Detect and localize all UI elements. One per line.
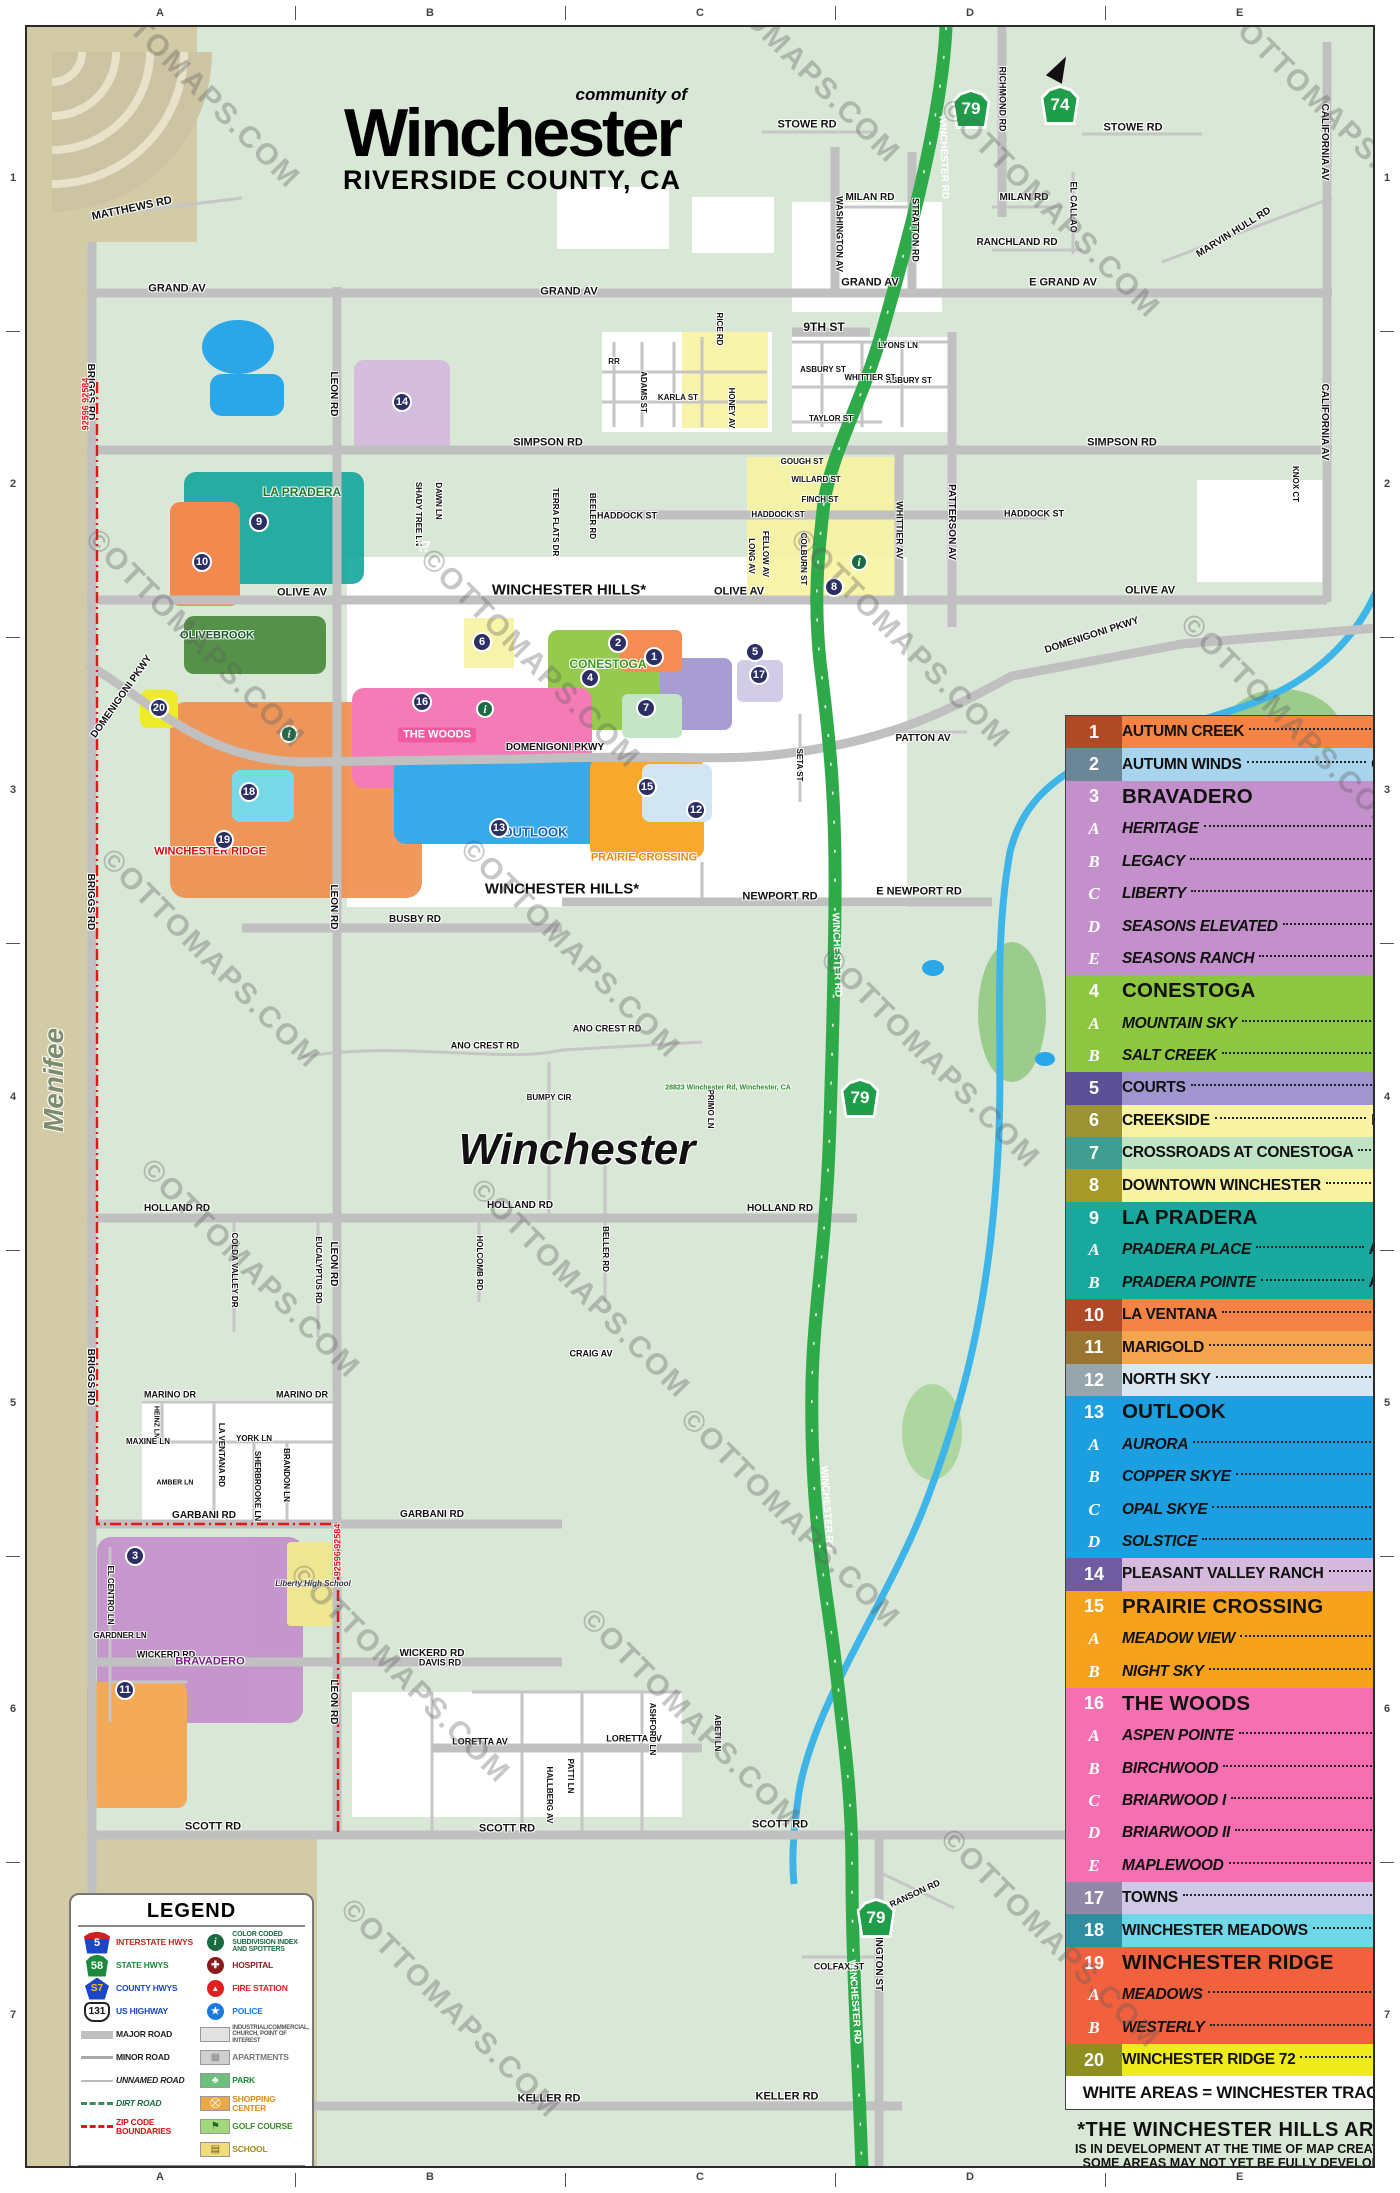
grid-row-label-right-6: 6 <box>1384 1703 1390 1715</box>
road-label-patterson-av: PATTERSON AV <box>946 484 956 560</box>
index-row-3C: CLIBERTYA-6 <box>1066 878 1375 910</box>
grid-col-label-bottom-B: B <box>426 2171 434 2183</box>
road-label-eucalyptus-rd: EUCALYPTUS RD <box>314 1236 322 1303</box>
index-row-15: 15PRAIRIE CROSSING <box>1066 1591 1375 1623</box>
footnote-line1: IS IN DEVELOPMENT AT THE TIME OF MAP CRE… <box>1057 2142 1375 2156</box>
index-letter: A <box>1066 1720 1122 1752</box>
legend-label: PARK <box>232 2076 255 2085</box>
leader-dots <box>1191 1084 1375 1086</box>
index-row-12: 12NORTH SKYC-3 <box>1066 1364 1375 1396</box>
watermark: ©OTTOMAPS.COM <box>573 1602 806 1835</box>
road-label-asbury-st: ASBURY ST <box>800 366 846 374</box>
index-number: 3 <box>1066 781 1122 813</box>
index-row-16C: CBRIARWOOD IB-3 <box>1066 1785 1375 1817</box>
legend-footer: MAPS BY OTTOMAPS.COM <box>78 2165 305 2168</box>
index-number: 4 <box>1066 975 1122 1007</box>
watermark: ©OTTOMAPS.COM <box>463 1172 696 1405</box>
subdivision-name: PRADERA PLACE <box>1122 1241 1251 1259</box>
index-row-13B: BCOPPER SKYEB-3 <box>1066 1461 1375 1493</box>
grid-row-label-right-2: 2 <box>1384 478 1390 490</box>
route-79-shield-mid: 79 <box>839 1078 881 1118</box>
index-footnote: *THE WINCHESTER HILLS AREA IS IN DEVELOP… <box>1057 2119 1375 2168</box>
grid-col-label-top-B: B <box>426 7 434 19</box>
legend-item-apartments-swatch: ▦APARTMENTS <box>198 2046 305 2069</box>
road-label-conestoga: CONESTOGA <box>569 658 646 670</box>
minor-road-line-icon <box>81 2056 113 2059</box>
road-label-stratton-rd: STRATTON RD <box>911 198 920 262</box>
index-row-16E: EMAPLEWOODB-3 <box>1066 1850 1375 1882</box>
index-row-4: 4CONESTOGA <box>1066 975 1375 1007</box>
grid-col-label-top-A: A <box>156 7 164 19</box>
ruler-tick <box>1380 331 1394 332</box>
north-arrow-icon <box>1046 52 1074 83</box>
road-label-ranchland-rd: RANCHLAND RD <box>976 238 1057 248</box>
leader-dots <box>1231 1797 1375 1799</box>
subdivision-name: HERITAGE <box>1122 820 1199 838</box>
grid-row-label-left-2: 2 <box>10 478 16 490</box>
road-label-simpson-rd: SIMPSON RD <box>1087 438 1157 449</box>
grid-row-label-left-6: 6 <box>10 1703 16 1715</box>
grid-row-label-right-5: 5 <box>1384 1397 1390 1409</box>
road-label-patton-av: PATTON AV <box>896 734 951 744</box>
ruler-tick <box>835 2173 836 2187</box>
road-label-honey-av: HONEY AV <box>727 388 735 429</box>
legend-item-state-hwy-shield: 58STATE HWYS <box>78 1954 198 1977</box>
road-label-seta-st: SETA ST <box>795 749 803 782</box>
ruler-tick <box>6 331 20 332</box>
road-label-craig-av: CRAIG AV <box>569 1350 612 1359</box>
shopping-center-swatch-icon: ⛒ <box>200 2096 230 2111</box>
index-letter: B <box>1066 1267 1122 1299</box>
legend-label: US HIGHWAY <box>116 2007 168 2016</box>
leader-dots <box>1242 1020 1375 1022</box>
index-number: 13 <box>1066 1396 1122 1428</box>
index-number: 6 <box>1066 1105 1122 1137</box>
index-letter: E <box>1066 1850 1122 1882</box>
index-letter: A <box>1066 813 1122 845</box>
grid-col-label-top-D: D <box>966 7 974 19</box>
leader-dots <box>1235 1829 1375 1831</box>
apartments-swatch-icon: ▦ <box>200 2050 230 2065</box>
road-label-domenigoni-pkwy: DOMENIGONI PKWY <box>90 654 155 740</box>
watermark: ©OTTOMAPS.COM <box>453 832 686 1065</box>
leader-dots <box>1240 1635 1375 1637</box>
subdivision-name: MEADOW VIEW <box>1122 1630 1235 1648</box>
index-row-15B: BNIGHT SKYC-3 <box>1066 1655 1375 1687</box>
major-road-line-icon <box>81 2031 113 2039</box>
legend-label: UNNAMED ROAD <box>116 2076 184 2085</box>
road-label-leon-rd: LEON RD <box>328 1242 338 1287</box>
road-label-california-av: CALIFORNIA AV <box>1319 384 1329 461</box>
leader-dots <box>1358 1149 1375 1151</box>
index-letter: A <box>1066 1623 1122 1655</box>
index-number: 11 <box>1066 1331 1122 1363</box>
legend-item-county-hwy-shield: S7COUNTY HWYS <box>78 1977 198 2000</box>
police-circle-icon: ★ <box>207 2003 224 2020</box>
legend-item-info-circle: iCOLOR CODED SUBDIVISION INDEX AND SPOTT… <box>198 1931 305 1954</box>
index-row-17: 17TOWNSC-3 <box>1066 1882 1375 1914</box>
road-label-ano-crest-rd: ANO CREST RD <box>451 1042 520 1051</box>
legend-item-unnamed-road: UNNAMED ROAD <box>78 2069 198 2092</box>
index-row-16D: DBRIARWOOD IIB-3 <box>1066 1817 1375 1849</box>
index-row-10: 10LA VENTANAA-2 <box>1066 1299 1375 1331</box>
leader-dots <box>1210 2024 1375 2026</box>
legend-item-minor-road: MINOR ROAD <box>78 2046 198 2069</box>
index-letter: B <box>1066 1753 1122 1785</box>
map-canvas: 79 79 79 74 community of Winchester RIVE… <box>25 25 1375 2168</box>
ruler-tick <box>1105 6 1106 20</box>
index-row-3A: AHERITAGEA-6 <box>1066 813 1375 845</box>
road-label-winchester: Winchester <box>459 1128 696 1172</box>
shopping-cart-icon <box>790 688 806 707</box>
subdivision-name: TOWNS <box>1122 1889 1178 1907</box>
road-label-garbani-rd: GARBANI RD <box>172 1511 236 1521</box>
index-row-19: 19WINCHESTER RIDGE <box>1066 1947 1375 1979</box>
road-label-haddock-st: HADDOCK ST <box>597 512 657 521</box>
subdivision-spotter-17: 17 <box>749 665 769 685</box>
road-label-briggs-rd: BRIGGS RD <box>85 1349 95 1406</box>
subdivision-spotter-13: 13 <box>489 818 509 838</box>
road-label-milan-rd: MILAN RD <box>846 193 895 203</box>
road-label-knox-ct: KNOX CT <box>1291 466 1299 502</box>
road-label-el-centro-ln: EL CENTRO LN <box>106 1566 114 1625</box>
index-letter: A <box>1066 1429 1122 1461</box>
index-row-16A: AASPEN POINTEB-3 <box>1066 1720 1375 1752</box>
road-label-grand-av: GRAND AV <box>841 278 898 289</box>
index-letter: B <box>1066 1461 1122 1493</box>
leader-dots <box>1329 1570 1375 1572</box>
road-label-28823-winchester-rd-winchester-ca: 28823 Winchester Rd, Winchester, CA <box>665 1085 791 1092</box>
road-label-busby-rd: BUSBY RD <box>389 915 441 925</box>
road-label-beeler-rd: BEELER RD <box>588 493 596 539</box>
grid-reference: B-2/3 <box>1371 1112 1375 1130</box>
index-letter: C <box>1066 1493 1122 1525</box>
grid-row-label-left-3: 3 <box>10 784 16 796</box>
leader-dots <box>1183 1894 1375 1896</box>
legend-label: COLOR CODED SUBDIVISION INDEX AND SPOTTE… <box>232 1931 305 1953</box>
road-label-olive-av: OLIVE AV <box>714 587 764 598</box>
index-row-16B: BBIRCHWOODB-3 <box>1066 1753 1375 1785</box>
leader-dots <box>1283 923 1375 925</box>
index-row-13C: COPAL SKYEB-3 <box>1066 1493 1375 1525</box>
ruler-tick <box>565 2173 566 2187</box>
legend-item-industrial-swatch: INDUSTRIAL/COMMERCIAL, CHURCH, POINT OF … <box>198 2023 305 2046</box>
road-label-gough-st: GOUGH ST <box>781 458 824 466</box>
shopping-cart-icon <box>777 646 793 665</box>
us-hwy-shield-icon: 131 <box>84 2002 110 2022</box>
ruler-tick <box>1380 943 1394 944</box>
legend-item-fire-station-circle: ▲FIRE STATION <box>198 1977 305 2000</box>
unnamed-road-line-icon <box>81 2080 113 2082</box>
leader-dots <box>1222 1311 1375 1313</box>
leader-dots <box>1222 1052 1375 1054</box>
grid-row-label-left-7: 7 <box>10 2009 16 2021</box>
subdivision-name: ASPEN POINTE <box>1122 1727 1234 1745</box>
legend-label: ZIP CODE BOUNDARIES <box>116 2118 198 2136</box>
grid-col-label-bottom-A: A <box>156 2171 164 2183</box>
road-label-newport-rd: NEWPORT RD <box>742 892 817 903</box>
grid-col-label-bottom-E: E <box>1236 2171 1243 2183</box>
index-letter: D <box>1066 910 1122 942</box>
road-label-terra-flats-dr: TERRA FLATS DR <box>551 488 559 556</box>
leader-dots <box>1326 1182 1375 1184</box>
index-letter: C <box>1066 878 1122 910</box>
leader-dots <box>1209 1344 1375 1346</box>
footnote-title: *THE WINCHESTER HILLS AREA <box>1057 2119 1375 2142</box>
road-label-grand-av: GRAND AV <box>148 284 205 295</box>
road-label-outlook: OUTLOOK <box>503 826 568 839</box>
subdivision-name: COURTS <box>1122 1079 1186 1097</box>
subdivision-name: BRIARWOOD II <box>1122 1824 1230 1842</box>
subdivision-name: AUTUMN WINDS <box>1122 756 1242 774</box>
road-label-heinz-ln: HEINZ LN <box>153 1406 160 1438</box>
legend-item-major-road: MAJOR ROAD <box>78 2023 198 2046</box>
ruler-tick <box>6 943 20 944</box>
road-label-haddock-st: HADDOCK ST <box>1004 510 1064 519</box>
legend-label: DIRT ROAD <box>116 2099 161 2108</box>
road-label-brandon-ln: BRANDON LN <box>282 1448 290 1502</box>
road-label-holland-rd: HOLLAND RD <box>747 1204 813 1214</box>
road-label-marvin-hull-rd: MARVIN HULL RD <box>1195 206 1273 260</box>
index-letter: A <box>1066 1008 1122 1040</box>
index-letter: C <box>1066 1785 1122 1817</box>
road-label-garbani-rd: GARBANI RD <box>400 1510 464 1520</box>
index-number: 10 <box>1066 1299 1122 1331</box>
grid-row-label-right-4: 4 <box>1384 1091 1390 1103</box>
road-label-hallberg-av: HALLBERG AV <box>545 1767 553 1824</box>
grid-col-label-bottom-D: D <box>966 2171 974 2183</box>
index-row-15A: AMEADOW VIEWC-3 <box>1066 1623 1375 1655</box>
road-label-rr: RR <box>608 358 620 366</box>
index-letter: B <box>1066 846 1122 878</box>
page-title: Winchester <box>282 99 742 167</box>
index-letter: B <box>1066 1040 1122 1072</box>
index-number: 5 <box>1066 1072 1122 1104</box>
leader-dots <box>1216 1376 1375 1378</box>
subdivision-name: COPPER SKYE <box>1122 1468 1231 1486</box>
index-row-7: 7CROSSROADS AT CONESTOGAC-3 <box>1066 1137 1375 1169</box>
ruler-tick <box>6 1556 20 1557</box>
leader-dots <box>1209 1668 1375 1670</box>
legend-box: LEGEND 5INTERSTATE HWYS58STATE HWYSS7COU… <box>69 1893 314 2168</box>
road-label-leon-rd: LEON RD <box>328 885 338 930</box>
road-label-stowe-rd: STOWE RD <box>1103 123 1162 134</box>
subdivision-spotter-1: 1 <box>644 647 664 667</box>
index-row-8: 8DOWNTOWN WINCHESTERD-2 <box>1066 1169 1375 1201</box>
legend-label: HOSPITAL <box>232 1961 273 1970</box>
road-label-bumpy-cir: BUMPY CIR <box>527 1094 572 1102</box>
road-label-davis-rd: DAVIS RD <box>419 1659 461 1668</box>
index-row-20: 20WINCHESTER RIDGE 72A-3 <box>1066 2044 1375 2076</box>
grid-row-label-right-3: 3 <box>1384 784 1390 796</box>
road-label-ashford-ln: ASHFORD LN <box>648 1703 656 1755</box>
subdivision-name: NORTH SKY <box>1122 1371 1211 1389</box>
road-label-grand-av: GRAND AV <box>540 287 597 298</box>
subdivision-name: NIGHT SKY <box>1122 1663 1204 1681</box>
interstate-shield-icon: 5 <box>84 1932 110 1954</box>
legend-item-golf-course-swatch: ⚑GOLF COURSE <box>198 2115 305 2138</box>
subdivision-name: CREEKSIDE <box>1122 1112 1210 1130</box>
subdivision-spotter-5: 5 <box>745 642 765 662</box>
ruler-tick <box>1380 1556 1394 1557</box>
subdivision-name: DOWNTOWN WINCHESTER <box>1122 1177 1321 1195</box>
road-label-holcomb-rd: HOLCOMB RD <box>475 1235 483 1290</box>
index-number: 9 <box>1066 1202 1122 1234</box>
legend-item-police-circle: ★POLICE <box>198 2000 305 2023</box>
legend-item-school-swatch: ▤SCHOOL <box>198 2138 305 2161</box>
road-label-willard-st: WILLARD ST <box>791 476 840 484</box>
road-label-olive-av: OLIVE AV <box>1125 586 1175 597</box>
road-label-beller-rd: BELLER RD <box>601 1226 609 1272</box>
road-label-whittier-av: WHITTIER AV <box>895 501 904 559</box>
zip-road-line-icon <box>81 2125 113 2128</box>
legend-label: GOLF COURSE <box>232 2122 292 2131</box>
road-label-stowe-rd: STOWE RD <box>777 120 836 131</box>
subdivision-name: WINCHESTER RIDGE 72 <box>1122 2051 1295 2069</box>
subdivision-name: THE WOODS <box>1122 1692 1250 1716</box>
legend-item-zip-road: ZIP CODE BOUNDARIES <box>78 2115 198 2138</box>
legend-item-us-hwy-shield: 131US HIGHWAY <box>78 2000 198 2023</box>
ruler-tick <box>835 6 836 20</box>
grid-row-label-right-7: 7 <box>1384 2009 1390 2021</box>
subdivision-name: SEASONS RANCH <box>1122 950 1254 968</box>
subdivision-name: SEASONS ELEVATED <box>1122 918 1278 936</box>
subdivision-name: OUTLOOK <box>1122 1400 1226 1424</box>
leader-dots <box>1229 1862 1376 1864</box>
road-label-la-pradera: LA PRADERA <box>263 486 341 498</box>
info-marker-icon: i <box>476 700 494 718</box>
road-label-gardner-ln: GARDNER LN <box>93 1632 146 1640</box>
road-label-menifee: Menifee <box>40 1028 68 1132</box>
ruler-tick <box>6 1250 20 1251</box>
subdivision-name: LA VENTANA <box>1122 1306 1217 1324</box>
grid-reference: A/B-2 <box>1369 1274 1375 1292</box>
road-label-patti-ln: PATTI LN <box>566 1759 574 1794</box>
subdivision-spotter-7: 7 <box>636 698 656 718</box>
subdivision-name: MOUNTAIN SKY <box>1122 1015 1237 1033</box>
ruler-tick <box>1105 2173 1106 2187</box>
index-row-13D: DSOLSTICEB-3 <box>1066 1526 1375 1558</box>
fire-station-circle-icon: ▲ <box>207 1980 224 1997</box>
subdivision-name: LA PRADERA <box>1122 1206 1258 1230</box>
leader-dots <box>1190 858 1375 860</box>
watermark: ©OTTOMAPS.COM <box>673 1402 906 1635</box>
road-label-prairie-crossing: PRAIRIE CROSSING <box>591 853 697 864</box>
legend-label: STATE HWYS <box>116 1961 168 1970</box>
industrial-swatch-icon <box>200 2027 230 2042</box>
subdivision-name: LIBERTY <box>1122 885 1186 903</box>
road-label-9th-st: 9TH ST <box>803 321 844 333</box>
route-74-shield: 74 <box>1039 85 1081 125</box>
index-number: 20 <box>1066 2044 1122 2076</box>
road-label-haddock-st: HADDOCK ST <box>751 511 804 519</box>
subdivision-name: WINCHESTER RIDGE <box>1122 1951 1334 1975</box>
subdivision-spotter-4: 4 <box>580 668 600 688</box>
subdivision-name: BIRCHWOOD <box>1122 1760 1218 1778</box>
grid-row-label-left-1: 1 <box>10 172 16 184</box>
subdivision-name: SALT CREEK <box>1122 1047 1217 1065</box>
leader-dots <box>1261 1279 1364 1281</box>
ruler-tick <box>295 2173 296 2187</box>
road-label-92596-92584: 92596 92584 <box>334 1524 343 1577</box>
subdivision-name: SOLSTICE <box>1122 1533 1197 1551</box>
index-letter: E <box>1066 943 1122 975</box>
grid-reference: C-2/3 <box>1371 756 1375 774</box>
school-swatch-icon: ▤ <box>200 2142 230 2157</box>
index-white-note: WHITE AREAS = WINCHESTER TRACTS <box>1066 2076 1375 2108</box>
index-row-5: 5COURTSC-3 <box>1066 1072 1375 1104</box>
subdivision-spotter-10: 10 <box>192 552 212 572</box>
legend-label: INTERSTATE HWYS <box>116 1938 193 1947</box>
county-hwy-shield-icon: S7 <box>85 1978 109 2000</box>
golf-course-swatch-icon: ⚑ <box>200 2119 230 2134</box>
subdivision-spotter-2: 2 <box>608 633 628 653</box>
road-label-ranson-rd: RANSON RD <box>888 1878 941 1909</box>
road-label-briggs-rd: BRIGGS RD <box>85 874 95 931</box>
subdivision-name: PRAIRIE CROSSING <box>1122 1595 1323 1619</box>
white-areas-note: WHITE AREAS = WINCHESTER TRACTS <box>1083 2083 1375 2103</box>
subdivision-name: OPAL SKYE <box>1122 1501 1207 1519</box>
road-label-la-ventana-rd: LA VENTANA RD <box>217 1423 225 1487</box>
legend-item-interstate-shield: 5INTERSTATE HWYS <box>78 1931 198 1954</box>
road-label-domenigoni-pkwy: DOMENIGONI PKWY <box>506 743 604 753</box>
index-row-3E: ESEASONS RANCHA-6 <box>1066 943 1375 975</box>
watermark: ©OTTOMAPS.COM <box>333 1892 566 2125</box>
road-label-simpson-rd: SIMPSON RD <box>513 438 583 449</box>
road-label-finch-st: FINCH ST <box>802 496 839 504</box>
leader-dots <box>1259 955 1375 957</box>
winchester-map-poster: 79 79 79 74 community of Winchester RIVE… <box>0 0 1400 2193</box>
leader-dots <box>1204 825 1375 827</box>
index-row-9A: APRADERA PLACEA/B-2 <box>1066 1234 1375 1266</box>
index-letter: D <box>1066 1526 1122 1558</box>
index-number: 2 <box>1066 748 1122 780</box>
subdivision-spotter-3: 3 <box>125 1546 145 1566</box>
road-label-taylor-st: TAYLOR ST <box>809 415 853 423</box>
subdivision-name: CROSSROADS AT CONESTOGA <box>1122 1144 1353 1162</box>
index-row-16: 16THE WOODS <box>1066 1688 1375 1720</box>
ruler-tick <box>1380 637 1394 638</box>
index-row-14: 14PLEASANT VALLEY RANCHB-2 <box>1066 1558 1375 1590</box>
road-label-scott-rd: SCOTT RD <box>479 1824 535 1835</box>
grid-row-label-left-5: 5 <box>10 1397 16 1409</box>
road-label-dawn-ln: DAWN LN <box>434 482 442 519</box>
legend-label: MINOR ROAD <box>116 2053 170 2062</box>
subdivision-name: WINCHESTER MEADOWS <box>1122 1922 1308 1940</box>
ruler-tick <box>1380 1862 1394 1863</box>
leader-dots <box>1215 1117 1366 1119</box>
road-label-scott-rd: SCOTT RD <box>185 1822 241 1833</box>
subdivision-name: PLEASANT VALLEY RANCH <box>1122 1565 1324 1583</box>
subdivision-spotter-12: 12 <box>686 800 706 820</box>
subdivision-spotter-19: 19 <box>214 830 234 850</box>
road-label-olive-av: OLIVE AV <box>277 588 327 599</box>
index-number: 7 <box>1066 1137 1122 1169</box>
subdivision-spotter-11: 11 <box>115 1680 135 1700</box>
legend-label: COUNTY HWYS <box>116 1984 177 1993</box>
leader-dots <box>1236 1473 1375 1475</box>
road-label-york-ln: YORK LN <box>236 1435 272 1443</box>
footnote-line2: SOME AREAS MAY NOT YET BE FULLY DEVELOPE… <box>1057 2156 1375 2168</box>
road-label-leon-rd: LEON RD <box>328 1680 338 1725</box>
grid-col-label-top-C: C <box>696 7 704 19</box>
road-label-primo-ln: PRIMO LN <box>706 1089 714 1128</box>
subdivision-name: LEGACY <box>1122 853 1185 871</box>
park-swatch-icon: ♣ <box>200 2073 230 2088</box>
leader-dots <box>1300 2056 1375 2058</box>
map-title-block: community of Winchester RIVERSIDE COUNTY… <box>282 85 742 196</box>
index-letter: B <box>1066 1655 1122 1687</box>
